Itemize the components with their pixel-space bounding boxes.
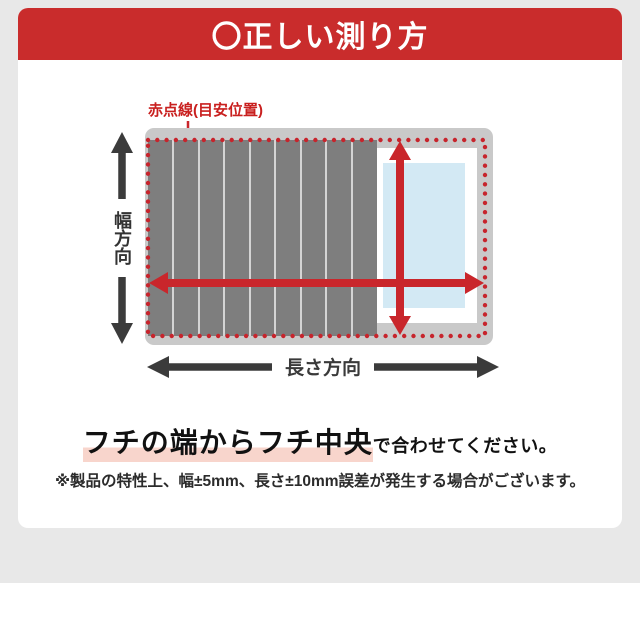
bath-lid	[148, 140, 377, 336]
instruction-card: 〇正しい測り方 赤点線(目安位置)	[18, 8, 622, 528]
instruction-message: フチの端からフチ中央で合わせてください。	[18, 421, 622, 461]
width-direction-label: 幅方向	[112, 210, 132, 266]
header-banner: 〇正しい測り方	[18, 8, 622, 60]
screenshot-root: 〇正しい測り方 赤点線(目安位置)	[0, 0, 640, 640]
instruction-highlighted-text: フチの端からフチ中央	[83, 427, 373, 462]
tolerance-footnote: ※製品の特性上、幅±5mm、長さ±10mm誤差が発生する場合がございます。	[18, 469, 622, 491]
length-direction-label: 長さ方向	[285, 356, 361, 379]
red-dotted-line-label: 赤点線(目安位置)	[148, 101, 263, 119]
instruction-rest-text: で合わせてください。	[373, 436, 557, 456]
page-title: 〇正しい測り方	[212, 12, 429, 56]
measuring-diagram: 赤点線(目安位置)	[18, 95, 622, 385]
